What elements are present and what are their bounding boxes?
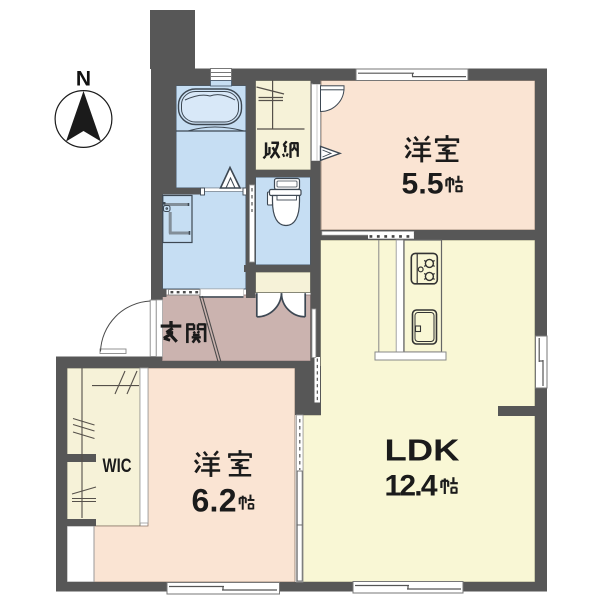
svg-text:5.5: 5.5 xyxy=(402,168,444,201)
svg-text:LDK: LDK xyxy=(385,433,461,468)
svg-text:12.4: 12.4 xyxy=(385,470,438,503)
svg-text:6.2: 6.2 xyxy=(192,483,237,519)
svg-text:WIC: WIC xyxy=(103,456,132,477)
svg-text:N: N xyxy=(76,68,91,91)
